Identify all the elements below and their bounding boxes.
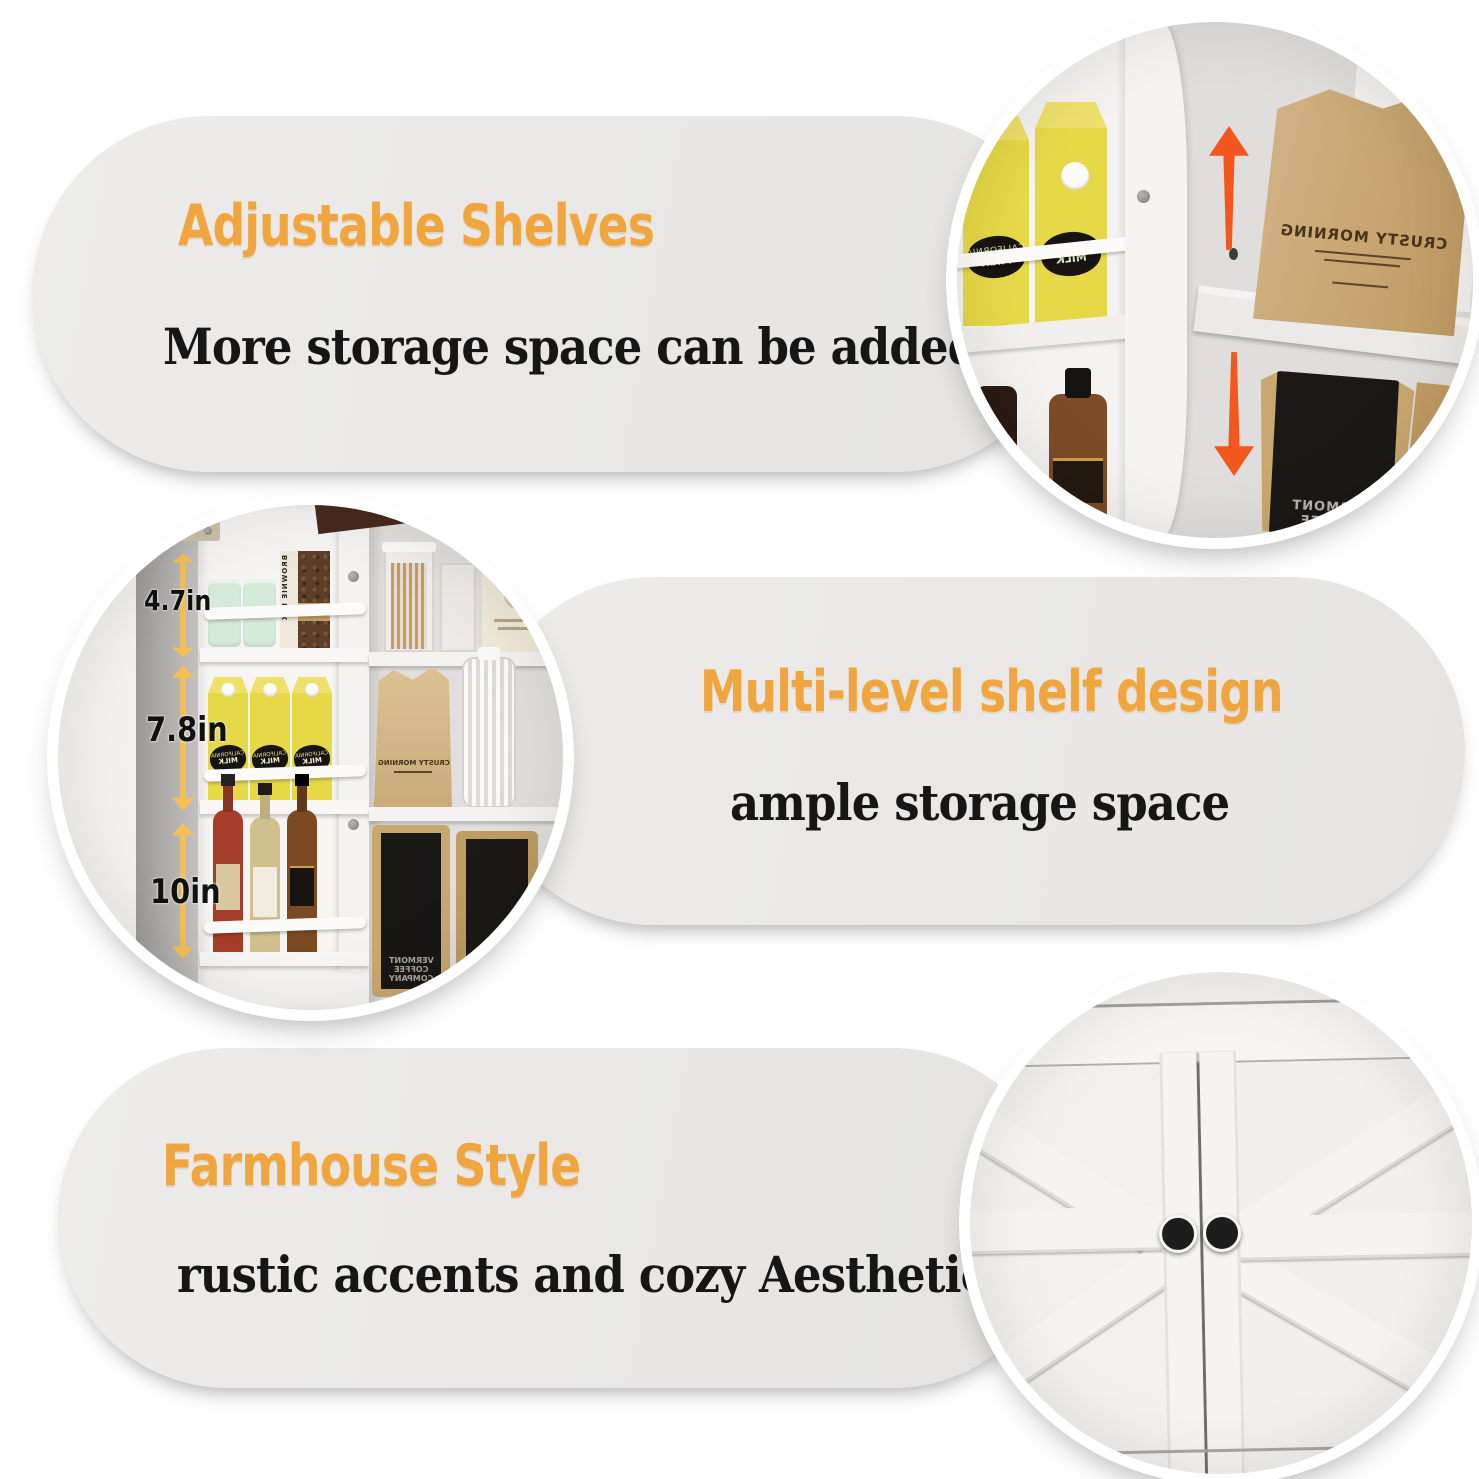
bread-bag-label: CRUSTY MORNING	[1278, 221, 1449, 254]
milk-badge-bottom: MILK	[260, 757, 280, 766]
measure-label-tier3: 10in	[150, 875, 221, 909]
coffee-bag-panel: VERMONT COFFEE	[466, 839, 528, 989]
coffee-bag-panel: VERMONT COFFEE COMPANY	[381, 833, 441, 989]
divider-panel	[1125, 22, 1187, 538]
coffee-bag-line: COFFEE	[480, 974, 515, 983]
feature-title-multi-level: Multi-level shelf design	[700, 664, 1283, 721]
feature-pill-multi-level: Multi-level shelf design ample storage s…	[480, 577, 1465, 925]
cookie-box	[482, 567, 552, 652]
coffee-bag-line: VERMONT	[475, 965, 520, 974]
adjust-up-arrow-icon	[1209, 126, 1249, 250]
adjust-down-arrow-icon	[1214, 352, 1254, 476]
canister-lid	[382, 542, 436, 552]
canister	[440, 563, 476, 652]
coffee-bag-panel: VERMONT COFFEE	[1269, 371, 1399, 538]
carton-cap	[221, 683, 235, 697]
bottle-neck	[260, 793, 270, 819]
measure-label-tier1: 4.7in	[144, 587, 211, 615]
bag-print-line	[1324, 259, 1400, 268]
bottle-cap	[258, 783, 272, 795]
feature-subtitle-farmhouse: rustic accents and cozy Aesthetic	[177, 1250, 987, 1300]
carton-cap	[1061, 162, 1089, 190]
seltzer-cap	[478, 647, 500, 660]
box-print-line	[494, 619, 540, 622]
flour-bag-label: CRUSTY MORNING	[378, 759, 448, 767]
box-print-line	[498, 627, 536, 630]
barn-door-scene	[970, 972, 1472, 1474]
feature-subtitle-adjustable-shelves: More storage space can be added	[163, 322, 978, 372]
door-trim-rail	[970, 1206, 1163, 1255]
coffee-bag-line: COFFEE	[394, 965, 429, 974]
seltzer-bottle	[462, 657, 516, 808]
tier-board	[200, 952, 369, 966]
feature-pill-adjustable-shelves: Adjustable Shelves More storage space ca…	[32, 116, 1072, 472]
pantry-shelf	[369, 807, 563, 821]
photo-circle-multi-level: BROWNIE MIX CALIFORNIA MILK CALIFORNIA M…	[58, 505, 563, 1010]
screw	[204, 527, 212, 535]
coffee-bag-line: VERMONT	[389, 956, 434, 965]
screw	[179, 527, 187, 535]
bottle-label	[1053, 458, 1103, 503]
coffee-bag-line: COFFEE	[1299, 513, 1362, 531]
milk-carton: CALIFORNIA MILK	[1035, 128, 1107, 326]
door-outer-face	[58, 505, 136, 1010]
bottle-cap	[221, 774, 235, 786]
measure-label-tier2: 7.8in	[146, 713, 228, 747]
hinge-plate	[172, 521, 220, 541]
bag-print-line	[394, 771, 432, 773]
screw	[1137, 190, 1150, 203]
milk-badge-bottom: MILK	[218, 757, 238, 766]
coffee-bag-line: COMPANY	[389, 974, 433, 983]
bottle-neck	[223, 784, 233, 812]
brownie-mix-box: BROWNIE MIX	[280, 551, 330, 648]
bottle-cap	[1065, 368, 1091, 398]
feature-title-farmhouse: Farmhouse Style	[162, 1138, 580, 1195]
door-trim-rail	[1240, 1211, 1472, 1260]
bread-bag-text: CRUSTY MORNING	[1279, 221, 1448, 254]
product-feature-infographic: Adjustable Shelves More storage space ca…	[0, 0, 1479, 1479]
spaghetti-sticks	[391, 563, 427, 649]
feature-title-adjustable-shelves: Adjustable Shelves	[178, 198, 654, 255]
photo-circle-adjustable-shelves: CALIFORNIA MILK CALIFORNIA MILK	[957, 22, 1473, 538]
coffee-bag: VERMONT COFFEE	[1253, 370, 1415, 538]
tier-board	[200, 648, 369, 662]
feature-subtitle-multi-level: ample storage space	[730, 778, 1229, 828]
spaghetti-canister	[384, 549, 434, 652]
door-rack-side-wall	[339, 519, 369, 971]
screw	[348, 571, 359, 582]
flour-bag: CRUSTY MORNING	[374, 667, 452, 808]
carton-gable	[1035, 102, 1107, 128]
carton-gable	[963, 116, 1029, 140]
carton-cap	[305, 683, 319, 697]
bag-print-line	[1332, 282, 1388, 289]
carton-cap	[263, 683, 277, 697]
whiskey-bottle	[1049, 394, 1107, 538]
coffee-bag: VERMONT COFFEE	[456, 831, 538, 997]
milk-carton: CALIFORNIA MILK	[963, 140, 1029, 326]
bottle-cap	[295, 774, 309, 786]
coffee-bag: VERMONT COFFEE COMPANY	[372, 825, 450, 997]
box-emblem	[504, 583, 530, 609]
flour-bag-text: CRUSTY MORNING	[378, 759, 450, 767]
bottle	[975, 386, 1017, 538]
bottle-label	[290, 866, 314, 906]
screw	[348, 819, 359, 830]
bread-bag: CRUSTY MORNING	[1253, 80, 1473, 337]
photo-circle-farmhouse-doors	[970, 972, 1472, 1474]
feature-pill-farmhouse: Farmhouse Style rustic accents and cozy …	[58, 1048, 1063, 1388]
yogurt-cup	[243, 614, 276, 647]
bottle-neck	[297, 784, 307, 812]
brownie-photo	[298, 551, 330, 648]
bottle-label	[253, 867, 277, 917]
door-edge	[136, 505, 198, 1010]
